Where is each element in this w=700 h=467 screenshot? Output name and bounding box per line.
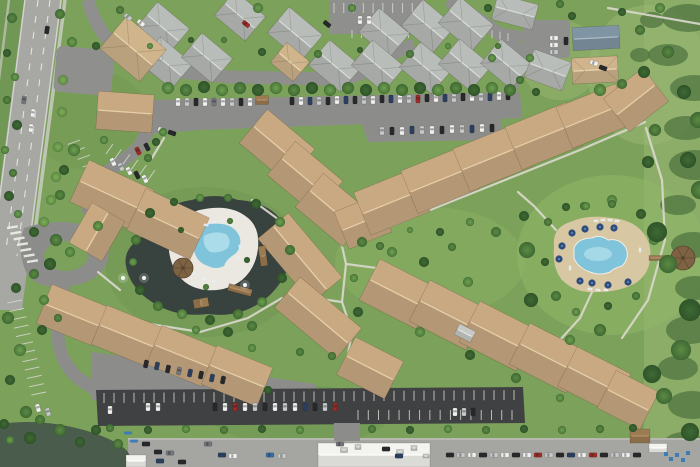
parked-car <box>293 403 297 411</box>
tree <box>378 82 390 94</box>
tree <box>116 6 124 14</box>
tree <box>221 37 227 43</box>
tree <box>324 84 336 96</box>
parked-car <box>154 450 162 454</box>
parked-car <box>335 96 339 104</box>
scrub-patch <box>660 195 696 215</box>
pool-umbrella <box>555 255 562 262</box>
parked-car <box>299 97 303 105</box>
parked-car <box>323 403 327 411</box>
tree <box>7 13 17 23</box>
tree <box>144 426 152 434</box>
tree <box>488 54 496 62</box>
parked-car <box>501 453 509 457</box>
tree <box>275 217 285 227</box>
tree <box>445 43 451 49</box>
parked-car <box>367 16 371 24</box>
tree <box>2 312 14 324</box>
parked-car <box>213 403 217 411</box>
parked-car <box>416 95 420 103</box>
tree <box>444 425 452 433</box>
tree <box>541 258 549 266</box>
tree <box>484 4 492 12</box>
parked-car <box>21 96 26 105</box>
tree <box>596 425 604 433</box>
tree <box>544 218 552 226</box>
tree <box>636 209 646 219</box>
blue-bin <box>664 452 668 456</box>
tree <box>655 3 665 13</box>
palm-tree <box>39 217 49 227</box>
tree <box>14 210 22 218</box>
tree <box>35 415 45 425</box>
parked-car <box>178 460 186 464</box>
pool-umbrella <box>558 242 565 249</box>
tree <box>177 309 187 319</box>
parked-car <box>212 98 216 106</box>
tree <box>233 309 243 319</box>
tree <box>387 247 397 257</box>
tree <box>29 227 39 237</box>
pool-umbrella <box>581 225 588 232</box>
parked-car <box>443 94 447 102</box>
tree <box>357 47 363 53</box>
tree <box>468 84 480 96</box>
parked-car <box>30 109 35 118</box>
tree <box>348 4 356 12</box>
tree <box>12 120 22 130</box>
crosswalk-stripe <box>17 243 28 245</box>
tree <box>54 314 62 322</box>
tree <box>188 37 194 43</box>
fountain <box>121 276 125 280</box>
tree <box>39 295 49 305</box>
tree <box>656 388 672 404</box>
parked-car <box>239 98 243 106</box>
crosswalk-stripe <box>14 238 25 240</box>
tree <box>145 208 155 218</box>
tree <box>406 50 414 58</box>
tree <box>679 299 700 321</box>
parked-car <box>395 454 403 458</box>
parked-car <box>353 96 357 104</box>
parked-car <box>283 403 287 411</box>
parked-car <box>488 93 492 101</box>
tree <box>54 424 66 436</box>
tree <box>562 203 570 211</box>
tree <box>524 293 538 307</box>
parked-car <box>204 442 212 446</box>
parked-car <box>142 442 150 446</box>
tree <box>649 124 661 136</box>
tree <box>643 365 661 383</box>
lounge-chair <box>569 266 571 271</box>
tree <box>432 84 444 96</box>
tree <box>677 85 691 99</box>
tree <box>419 257 429 267</box>
parked-car <box>589 453 597 457</box>
parked-car <box>317 97 321 105</box>
tree <box>135 285 145 295</box>
parked-car <box>253 403 257 411</box>
tree <box>251 199 261 209</box>
parked-car <box>460 125 464 133</box>
pool-umbrella <box>568 229 575 236</box>
tree <box>20 406 32 418</box>
parked-car <box>166 451 174 455</box>
parked-car <box>398 95 402 103</box>
tree <box>491 227 501 237</box>
parked-car <box>326 97 330 105</box>
tree <box>147 43 153 49</box>
lounge-chair <box>587 288 592 291</box>
parked-car <box>108 406 112 414</box>
shed-roof-building <box>411 446 417 451</box>
parked-car <box>556 453 564 457</box>
parked-car <box>534 453 542 457</box>
blue-bin <box>686 451 690 455</box>
pool-umbrella <box>588 279 595 286</box>
aerial-photo-condo-complex <box>0 0 700 467</box>
tree <box>551 291 561 301</box>
tree <box>565 335 575 345</box>
parked-car <box>453 408 457 416</box>
tree <box>227 218 233 224</box>
tree <box>11 73 19 81</box>
parked-car <box>371 96 375 104</box>
tree <box>270 82 282 94</box>
tree <box>196 194 204 202</box>
pool-umbrella <box>596 223 603 230</box>
crosswalk-stripe <box>20 249 31 251</box>
tree <box>113 439 123 449</box>
parked-car <box>490 124 494 132</box>
parked-car <box>470 125 474 133</box>
parked-car <box>564 37 568 45</box>
tree <box>353 307 363 317</box>
parked-car <box>230 98 234 106</box>
tree <box>296 348 304 356</box>
tree <box>556 0 564 8</box>
parked-car <box>497 92 501 100</box>
white-roof-building <box>126 455 146 467</box>
tree <box>504 84 516 96</box>
parked-car <box>389 95 393 103</box>
tree <box>414 82 426 94</box>
tree <box>4 191 14 201</box>
tree <box>44 258 56 270</box>
parked-car <box>440 126 444 134</box>
palm-tree <box>57 107 67 117</box>
tree <box>594 324 606 336</box>
blue-bin <box>675 453 679 457</box>
crosswalk-stripe <box>10 232 21 234</box>
tree <box>55 9 65 19</box>
tan-roof-building <box>96 91 155 133</box>
parked-car <box>471 408 475 416</box>
tree <box>14 344 26 356</box>
tree <box>258 48 266 56</box>
parked-car <box>450 125 454 133</box>
tree <box>520 425 528 433</box>
parked-car <box>380 95 384 103</box>
tree <box>37 325 47 335</box>
tree <box>396 84 408 96</box>
tree <box>223 327 233 337</box>
crosswalk-stripe <box>27 260 38 262</box>
tree <box>350 274 358 282</box>
tree <box>100 136 108 144</box>
tree <box>516 76 524 84</box>
parked-car <box>28 124 33 133</box>
parked-car <box>233 403 237 411</box>
parked-car <box>523 453 531 457</box>
lounge-chair <box>601 219 606 221</box>
parked-car <box>156 459 164 463</box>
blue-bin <box>669 457 673 461</box>
tree <box>152 138 160 146</box>
parked-car <box>333 403 337 411</box>
tree <box>244 257 250 263</box>
kayak <box>124 432 132 435</box>
parked-car <box>336 442 344 446</box>
parked-car <box>203 98 207 106</box>
parked-car <box>512 453 520 457</box>
tree <box>519 242 535 258</box>
white-roof-building <box>649 444 667 453</box>
parked-car <box>600 453 608 457</box>
tree <box>92 42 100 50</box>
east-pool-shallow <box>584 247 612 261</box>
parked-car <box>248 98 252 106</box>
parked-car <box>156 403 160 411</box>
parked-car <box>44 26 49 35</box>
parked-car <box>622 453 630 457</box>
parked-car <box>362 96 366 104</box>
tree <box>67 37 77 47</box>
tree <box>582 202 590 210</box>
parked-car <box>578 453 586 457</box>
lounge-chair <box>615 220 620 222</box>
parked-car <box>146 403 150 411</box>
palm-tree <box>46 195 56 205</box>
scrub-patch <box>630 48 650 62</box>
tree <box>29 269 39 279</box>
tree <box>24 432 36 444</box>
tree <box>205 315 215 325</box>
lounge-chair <box>594 220 599 222</box>
tree <box>448 243 456 251</box>
tree <box>671 340 691 360</box>
blue-roof-building <box>572 25 620 50</box>
tree <box>638 66 650 78</box>
tree <box>617 79 627 89</box>
lounge-chair <box>595 289 600 292</box>
parked-car <box>221 98 225 106</box>
tree <box>681 423 699 441</box>
tree <box>635 25 645 35</box>
crosswalk-stripe <box>7 226 18 228</box>
tree <box>360 84 372 96</box>
parked-car <box>611 453 619 457</box>
tree <box>216 84 228 96</box>
tree <box>248 344 256 352</box>
parked-car <box>400 127 404 135</box>
parked-car <box>550 43 558 47</box>
tree <box>65 247 75 257</box>
parked-car <box>243 403 247 411</box>
tree <box>642 156 654 168</box>
parked-car <box>266 453 274 457</box>
tree <box>277 273 287 283</box>
parked-car <box>545 453 553 457</box>
shed-roof-building <box>355 445 361 450</box>
tree <box>288 84 300 96</box>
parked-car <box>462 408 466 416</box>
tree <box>629 424 637 432</box>
tree <box>131 235 141 245</box>
tree <box>153 301 163 311</box>
tanlight-roof-building <box>571 56 618 84</box>
parked-car <box>278 454 286 458</box>
tree <box>680 152 696 168</box>
parked-car <box>290 97 294 105</box>
tree <box>50 234 62 246</box>
tree <box>234 82 246 94</box>
wood-roof-building <box>256 96 269 105</box>
lounge-chair <box>608 219 613 221</box>
tree <box>415 327 425 337</box>
tree <box>328 352 336 360</box>
parked-car <box>390 127 394 135</box>
blue-bin <box>681 458 685 462</box>
parked-car <box>303 403 307 411</box>
tree <box>91 425 101 435</box>
tree <box>526 54 534 62</box>
parked-car <box>380 127 384 135</box>
parked-car <box>410 126 414 134</box>
tree <box>306 82 318 94</box>
tree <box>568 12 576 20</box>
tree <box>285 245 295 255</box>
tree <box>314 50 322 58</box>
tree <box>203 284 209 290</box>
tree <box>342 82 354 94</box>
pool-umbrella <box>576 277 583 284</box>
tree <box>618 8 626 16</box>
parked-car <box>273 403 277 411</box>
tree <box>376 242 384 250</box>
parked-car <box>263 403 267 411</box>
tree <box>144 154 152 162</box>
tree <box>11 283 21 293</box>
parked-car <box>407 95 411 103</box>
pool-umbrella <box>624 278 631 285</box>
parked-car <box>420 126 424 134</box>
parked-car <box>446 453 454 457</box>
lounge-chair <box>639 248 641 253</box>
tree <box>466 218 474 226</box>
tree <box>178 227 184 233</box>
tree <box>257 297 267 307</box>
tree <box>75 437 85 447</box>
aerial-scene-canvas <box>0 0 700 467</box>
tree <box>258 425 266 433</box>
lounge-chair <box>603 289 608 292</box>
pool-umbrella <box>610 224 617 231</box>
tree <box>436 228 444 236</box>
tree <box>106 424 114 432</box>
fountain <box>243 283 247 287</box>
tree <box>357 237 367 247</box>
tree <box>55 190 65 200</box>
parked-car <box>479 93 483 101</box>
tree <box>407 227 413 233</box>
tree <box>632 292 640 300</box>
parked-car <box>490 453 498 457</box>
pool-umbrella <box>604 281 611 288</box>
tree <box>556 394 564 402</box>
tree <box>159 128 167 136</box>
tree <box>6 436 14 444</box>
tree <box>3 96 11 104</box>
parked-car <box>358 16 362 24</box>
parked-car <box>223 403 227 411</box>
tree <box>0 419 9 429</box>
tree <box>450 82 462 94</box>
tree <box>170 198 178 206</box>
parked-car <box>452 94 456 102</box>
tree <box>604 302 612 310</box>
tree <box>220 426 228 434</box>
tree <box>482 426 490 434</box>
tree <box>608 200 616 208</box>
tree <box>296 426 304 434</box>
lagoon-pool-shallow <box>204 232 230 252</box>
fountain <box>142 276 146 280</box>
parked-car <box>218 453 226 457</box>
tree <box>465 350 475 360</box>
parked-car <box>457 453 465 457</box>
shed-roof-building <box>341 448 348 453</box>
tree <box>647 222 667 242</box>
parked-car <box>468 453 476 457</box>
tree <box>519 211 529 221</box>
parked-car <box>313 403 317 411</box>
parked-car <box>382 447 390 451</box>
crosswalk-stripe <box>24 255 35 257</box>
parked-car <box>194 98 198 106</box>
shed-roof-building <box>423 454 429 458</box>
palm-tree <box>53 142 63 152</box>
tree <box>572 308 580 316</box>
tree <box>5 375 15 385</box>
tree <box>594 84 606 96</box>
tree <box>93 221 103 231</box>
parked-car <box>479 453 487 457</box>
tree <box>68 144 80 156</box>
palm-tree <box>51 172 61 182</box>
tree <box>162 82 174 94</box>
parked-car <box>185 98 189 106</box>
parked-car <box>550 50 558 54</box>
tree <box>182 425 190 433</box>
tree <box>264 386 272 394</box>
parked-car <box>229 454 237 458</box>
parked-car <box>308 97 312 105</box>
tree <box>558 426 566 434</box>
tree <box>486 82 498 94</box>
